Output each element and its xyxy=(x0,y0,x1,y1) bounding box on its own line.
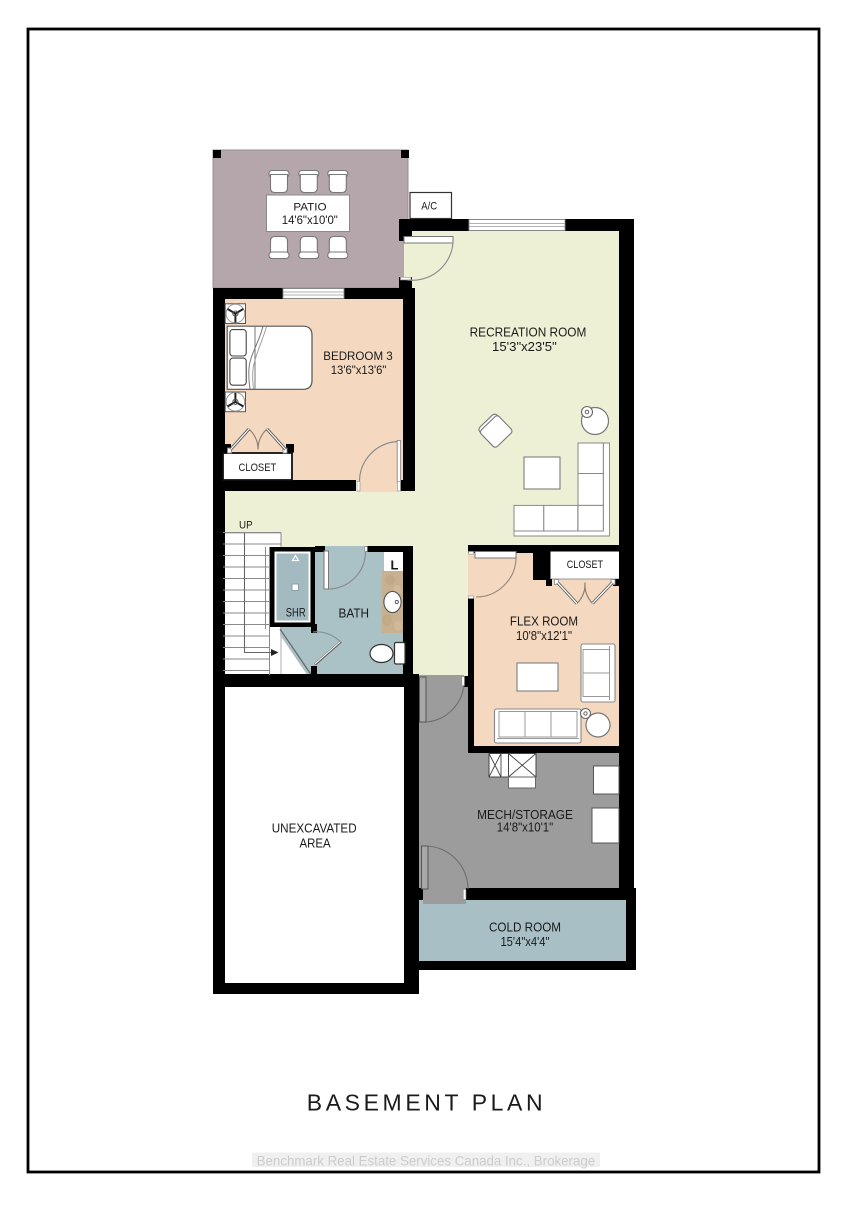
svg-text:15'3"x23'5": 15'3"x23'5" xyxy=(492,339,557,354)
svg-text:RECREATION ROOM: RECREATION ROOM xyxy=(470,324,587,339)
svg-text:UNEXCAVATED: UNEXCAVATED xyxy=(272,822,357,836)
svg-text:CLOSET: CLOSET xyxy=(567,559,604,571)
svg-text:COLD ROOM: COLD ROOM xyxy=(489,921,561,935)
svg-text:SHR: SHR xyxy=(286,606,306,619)
svg-text:14'8"x10'1": 14'8"x10'1" xyxy=(497,820,554,835)
svg-text:15'4"x4'4": 15'4"x4'4" xyxy=(500,935,549,949)
svg-text:AREA: AREA xyxy=(300,836,332,850)
svg-text:FLEX ROOM: FLEX ROOM xyxy=(510,615,578,629)
svg-text:13'6"x13'6": 13'6"x13'6" xyxy=(331,363,387,377)
svg-text:Benchmark Real Estate Services: Benchmark Real Estate Services Canada In… xyxy=(257,1154,596,1169)
svg-text:14'6"x10'0": 14'6"x10'0" xyxy=(282,214,338,227)
svg-text:BEDROOM 3: BEDROOM 3 xyxy=(323,350,393,363)
svg-text:BASEMENT PLAN: BASEMENT PLAN xyxy=(307,1090,546,1116)
svg-text:PATIO: PATIO xyxy=(293,202,327,214)
svg-text:10'8"x12'1": 10'8"x12'1" xyxy=(516,629,572,643)
svg-text:L: L xyxy=(391,558,399,573)
svg-text:BATH: BATH xyxy=(339,605,370,620)
svg-text:A/C: A/C xyxy=(421,201,437,213)
svg-text:CLOSET: CLOSET xyxy=(239,462,277,474)
svg-text:UP: UP xyxy=(239,520,253,532)
